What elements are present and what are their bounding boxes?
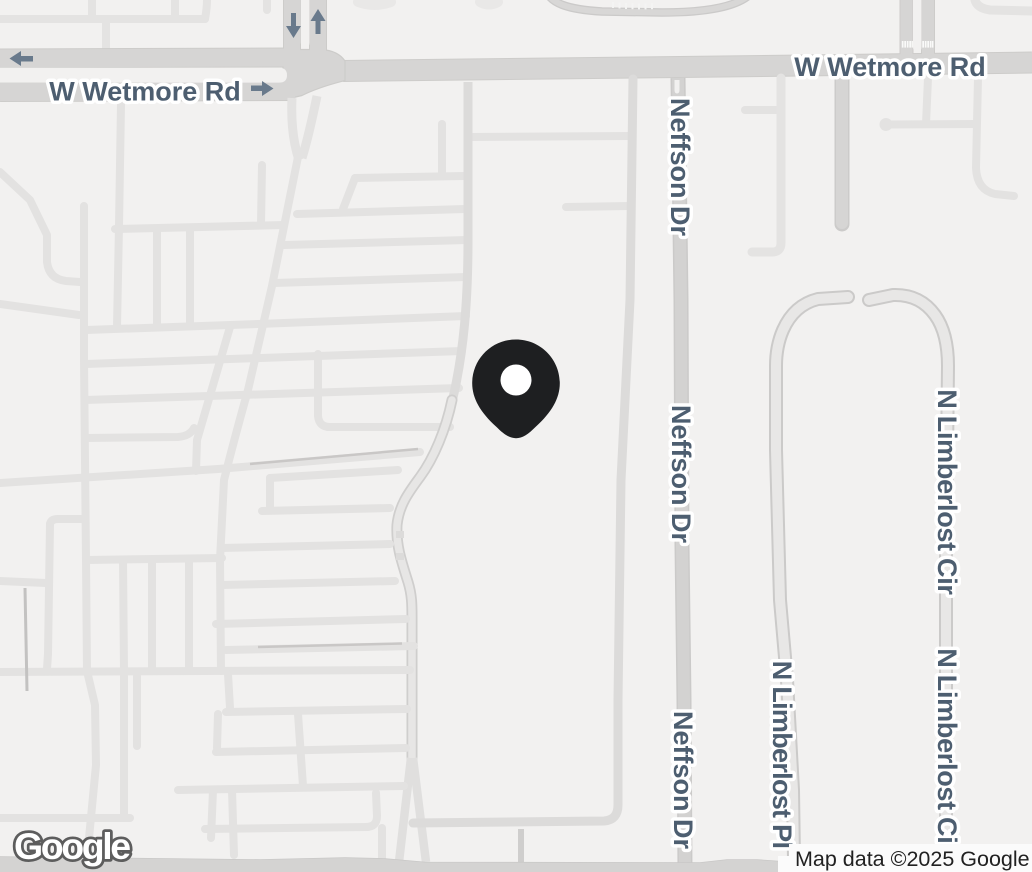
svg-text:Neffson Dr: Neffson Dr xyxy=(668,711,698,849)
svg-text:Map data ©2025 Google: Map data ©2025 Google xyxy=(795,847,1030,871)
svg-text:Google: Google xyxy=(14,825,130,867)
svg-text:Neffson Dr: Neffson Dr xyxy=(665,98,695,236)
svg-text:W Wetmore Rd: W Wetmore Rd xyxy=(794,52,986,82)
svg-text:N Limberlost Cir: N Limberlost Cir xyxy=(932,648,962,854)
svg-text:Neffson Dr: Neffson Dr xyxy=(666,405,696,543)
svg-text:W Wetmore Rd: W Wetmore Rd xyxy=(49,77,241,107)
svg-text:N Limberlost Cir: N Limberlost Cir xyxy=(932,389,962,595)
svg-text:N Limberlost Pl: N Limberlost Pl xyxy=(767,661,797,849)
